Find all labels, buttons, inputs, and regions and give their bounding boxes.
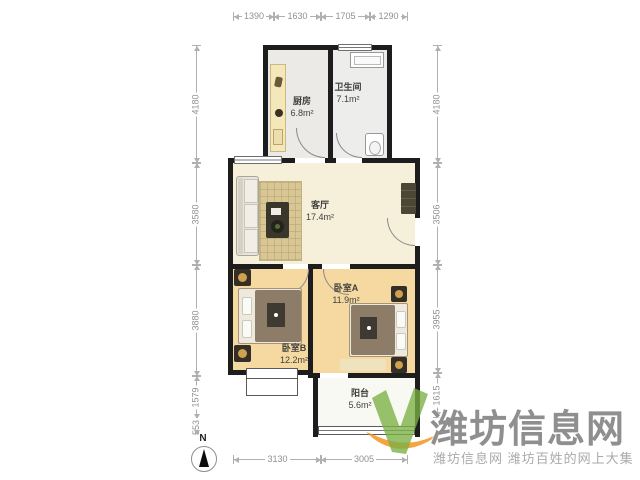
- balcony-window: [318, 426, 415, 435]
- blanket-accent: [360, 317, 377, 339]
- dim-label: 1630: [285, 12, 309, 21]
- compass-icon: N: [186, 433, 220, 479]
- bedroom-a-rug: [340, 359, 386, 371]
- stove-icon: [274, 76, 283, 87]
- sofa-cushion: [244, 179, 258, 203]
- wall-segment: [415, 246, 420, 437]
- bed-b: [238, 288, 302, 344]
- floor-plan-image: 1390 1630 1705 1290 4180 3580 3880 1579 …: [0, 0, 640, 480]
- dim-left-1: 4180: [192, 45, 201, 164]
- pillow: [242, 297, 252, 315]
- room-name: 卧室B: [268, 343, 320, 355]
- room-area: 11.9m²: [320, 295, 372, 307]
- room-area: 12.2m²: [268, 355, 320, 367]
- wall-segment: [228, 163, 233, 375]
- north-needle-icon: [199, 449, 209, 467]
- bed-a: [349, 303, 408, 357]
- watermark-title: 潍坊信息网: [430, 398, 625, 453]
- room-name: 客厅: [296, 200, 344, 212]
- wall-segment: [387, 50, 392, 162]
- dim-label: 3955: [433, 307, 442, 331]
- dim-left-4: 1579: [192, 375, 201, 420]
- wall-segment: [362, 158, 420, 163]
- wall-segment: [263, 50, 268, 162]
- shoe-cabinet: [401, 183, 416, 214]
- room-name: 卧室A: [320, 283, 372, 295]
- room-label-kitchen: 厨房 6.8m²: [281, 96, 323, 119]
- nightstand: [234, 269, 251, 286]
- pillow: [242, 320, 252, 338]
- room-area: 7.1m²: [324, 94, 372, 106]
- dim-top-3: 1705: [320, 12, 371, 21]
- pillow: [396, 333, 406, 350]
- toilet: [365, 133, 384, 156]
- dim-top-4: 1290: [369, 12, 408, 21]
- bay-window: [246, 368, 298, 396]
- dim-label: 3130: [265, 455, 289, 464]
- pillow: [396, 311, 406, 328]
- room-label-bedroom-a: 卧室A 11.9m²: [320, 283, 372, 306]
- room-label-balcony: 阳台 5.6m²: [336, 388, 384, 411]
- dim-label: 3005: [352, 455, 376, 464]
- dim-bottom-1: 3130: [233, 455, 322, 464]
- wall-segment: [325, 158, 336, 163]
- room-area: 17.4m²: [296, 212, 344, 224]
- dim-label: 1615: [433, 383, 442, 407]
- room-label-living-room: 客厅 17.4m²: [296, 200, 344, 223]
- sofa: [236, 176, 259, 256]
- compass-ring: [191, 446, 217, 472]
- blanket-accent: [267, 303, 285, 327]
- dim-top-2: 1630: [273, 12, 322, 21]
- kitchen-appliance: [273, 129, 283, 145]
- compass-north-label: N: [186, 433, 220, 445]
- dim-left-3: 3880: [192, 264, 201, 377]
- sofa-back: [238, 178, 243, 254]
- dim-bottom-2: 3005: [320, 455, 408, 464]
- dim-label: 1579: [192, 385, 201, 409]
- wall-segment: [350, 264, 420, 269]
- window: [234, 156, 282, 164]
- dim-right-4: 1615: [433, 372, 442, 418]
- coffee-table: [266, 202, 289, 238]
- dim-label: 1290: [376, 12, 400, 21]
- dim-top-1: 1390: [233, 12, 275, 21]
- room-area: 5.6m²: [336, 400, 384, 412]
- nightstand: [391, 286, 407, 302]
- wall-segment: [228, 370, 247, 375]
- nightstand: [234, 345, 251, 362]
- table-item: [271, 208, 281, 215]
- plant-icon: [271, 220, 284, 233]
- dim-right-3: 3955: [433, 264, 442, 374]
- dim-label: 3880: [192, 308, 201, 332]
- dim-label: 3506: [433, 202, 442, 226]
- room-label-bathroom: 卫生间 7.1m²: [324, 82, 372, 105]
- dim-label: 4180: [433, 92, 442, 116]
- dim-label: 3580: [192, 202, 201, 226]
- watermark-subtitle: 潍坊信息网 潍坊百姓的网上大集: [433, 448, 634, 467]
- room-name: 厨房: [281, 96, 323, 108]
- dim-label: 4180: [192, 92, 201, 116]
- dim-label: 1390: [242, 12, 266, 21]
- room-name: 阳台: [336, 388, 384, 400]
- dim-right-1: 4180: [433, 45, 442, 164]
- room-name: 卫生间: [324, 82, 372, 94]
- dim-right-2: 3506: [433, 162, 442, 266]
- room-area: 6.8m²: [281, 108, 323, 120]
- nightstand: [391, 357, 407, 373]
- sofa-cushion: [244, 204, 258, 228]
- window: [338, 44, 372, 51]
- room-label-bedroom-b: 卧室B 12.2m²: [268, 343, 320, 366]
- dim-left-2: 3580: [192, 162, 201, 266]
- sofa-cushion: [244, 229, 258, 253]
- bathroom-sink: [350, 52, 384, 68]
- dim-label: 1705: [333, 12, 357, 21]
- wall-segment: [282, 158, 295, 163]
- wall-segment: [348, 373, 420, 378]
